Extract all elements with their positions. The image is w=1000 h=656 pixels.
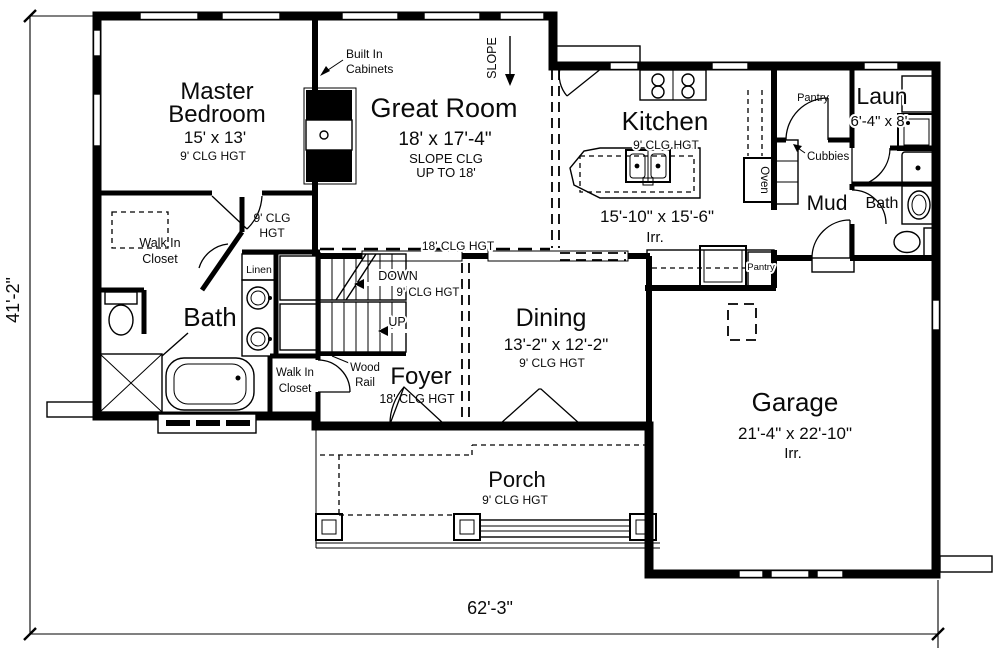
sink-icon: [247, 287, 269, 309]
porch-post: [316, 514, 342, 540]
garage-step: [812, 258, 854, 272]
pantry-top-label: Pantry: [797, 92, 829, 104]
up-label: UP: [388, 315, 405, 329]
rear-door: [559, 68, 602, 96]
master-bedroom-ceiling: 9' CLG HGT: [180, 149, 246, 163]
porch-post: [454, 514, 480, 540]
toilet-icon: [109, 305, 133, 335]
kitchen-size: 15'-10" x 15'-6": [600, 207, 714, 226]
dimension-left: 41'-2": [3, 277, 23, 323]
garage-door-panel: [739, 571, 763, 578]
refrigerator: [700, 246, 746, 286]
foyer-closet-label1: Walk In: [276, 367, 314, 379]
window: [342, 13, 398, 20]
mud-label: Mud: [807, 192, 848, 215]
great-room-label: Great Room: [370, 93, 517, 123]
master-closet-label2: Closet: [142, 252, 178, 266]
dimension-bottom: 62'-3": [467, 598, 513, 618]
sink-icon: [247, 328, 269, 350]
foyer-closet-door: [318, 360, 350, 392]
master-bedroom-size: 15' x 13': [184, 128, 246, 147]
cubbies-label: Cubbies: [807, 151, 849, 163]
kitchen-label: Kitchen: [622, 106, 709, 136]
window: [933, 300, 940, 330]
burner-icon: [652, 74, 664, 86]
garage-rear-stoop: [940, 556, 992, 572]
window: [712, 63, 748, 70]
cased-openings: [362, 251, 628, 261]
toilet-icon: [894, 232, 920, 253]
window: [424, 13, 480, 20]
dining-size: 13'-2" x 12'-2": [504, 335, 609, 354]
burner-icon: [682, 74, 694, 86]
great-room-ceiling2: UP TO 18': [416, 165, 476, 180]
laundry-size: 6'-4" x 8': [851, 113, 908, 130]
window: [94, 94, 101, 146]
slope-label: SLOPE: [485, 37, 499, 79]
garage-size: 21'-4" x 22'-10": [738, 424, 852, 443]
wood-rail-label2: Rail: [355, 377, 375, 389]
great-room-size: 18' x 17'-4": [398, 129, 491, 150]
window: [500, 13, 544, 20]
stair-chase: [280, 256, 318, 300]
garage-irr: Irr.: [784, 445, 802, 462]
dining-ceiling: 9' CLG HGT: [519, 356, 585, 370]
tub: [166, 358, 254, 410]
fireplace-built-in: [304, 88, 356, 184]
great-room-ceiling1: SLOPE CLG: [409, 151, 483, 166]
french-doors: [500, 389, 580, 424]
foyer-ceiling: 18' CLG HGT: [379, 392, 455, 406]
kitchen-irr: Irr.: [646, 229, 664, 246]
master-bath-label: Bath: [183, 302, 237, 332]
edge-ceiling-label: 18' CLG HGT: [422, 239, 495, 253]
pantry-door: [786, 98, 828, 140]
master-bath-fixtures: [100, 254, 276, 412]
foyer-closet-label2: Closet: [279, 383, 312, 395]
stair-chase: [280, 304, 318, 350]
floor-plan: 41'-2" 62'-3": [0, 0, 1000, 656]
garage-door-panel: [771, 571, 809, 578]
toilet-tank: [105, 292, 137, 304]
oven-label: Oven: [758, 166, 770, 194]
hall-ceiling1: 9' CLG: [254, 211, 291, 225]
window: [94, 30, 101, 56]
garage-door-panel: [817, 571, 843, 578]
built-in-label2: Cabinets: [346, 62, 393, 76]
garage-label: Garage: [752, 387, 839, 417]
window: [140, 13, 198, 20]
burner-icon: [652, 86, 664, 98]
foyer-label: Foyer: [390, 363, 451, 390]
linen-label: Linen: [246, 264, 272, 276]
window: [864, 63, 898, 70]
cubbies-bench: [776, 140, 798, 204]
porch-label: Porch: [488, 467, 545, 492]
burner-icon: [682, 86, 694, 98]
side-stoop: [47, 402, 97, 417]
stairs-ceiling-label: 9' CLG HGT: [397, 287, 460, 299]
hall-ceiling2: HGT: [259, 226, 285, 240]
room-labels: Master Bedroom 15' x 13' 9' CLG HGT Grea…: [139, 78, 907, 507]
window: [222, 13, 280, 20]
hall-bath-label: Bath: [866, 195, 899, 212]
master-closet-label1: Walk In: [139, 236, 180, 250]
mud-garage-door: [812, 220, 850, 258]
dining-label: Dining: [516, 304, 587, 332]
porch-railing: [480, 520, 630, 537]
floor-plan-sheet: 41'-2" 62'-3": [0, 0, 1000, 656]
bay-window: [158, 414, 256, 433]
laundry-label: Laun: [856, 83, 907, 109]
down-label: DOWN: [378, 269, 418, 283]
master-bedroom-label2: Bedroom: [168, 101, 265, 128]
wood-rail-leader: [332, 356, 349, 363]
built-in-label1: Built In: [346, 47, 383, 61]
rear-stoop: [556, 46, 640, 64]
pantry-lower-label: Pantry: [747, 262, 775, 273]
kitchen-ceiling: 9' CLG HGT: [633, 138, 699, 152]
garage-access-square: [728, 304, 756, 340]
wood-rail-label1: Wood: [350, 362, 380, 374]
porch-ceiling: 9' CLG HGT: [482, 493, 548, 507]
window: [610, 63, 638, 70]
laundry-door: [852, 148, 890, 186]
